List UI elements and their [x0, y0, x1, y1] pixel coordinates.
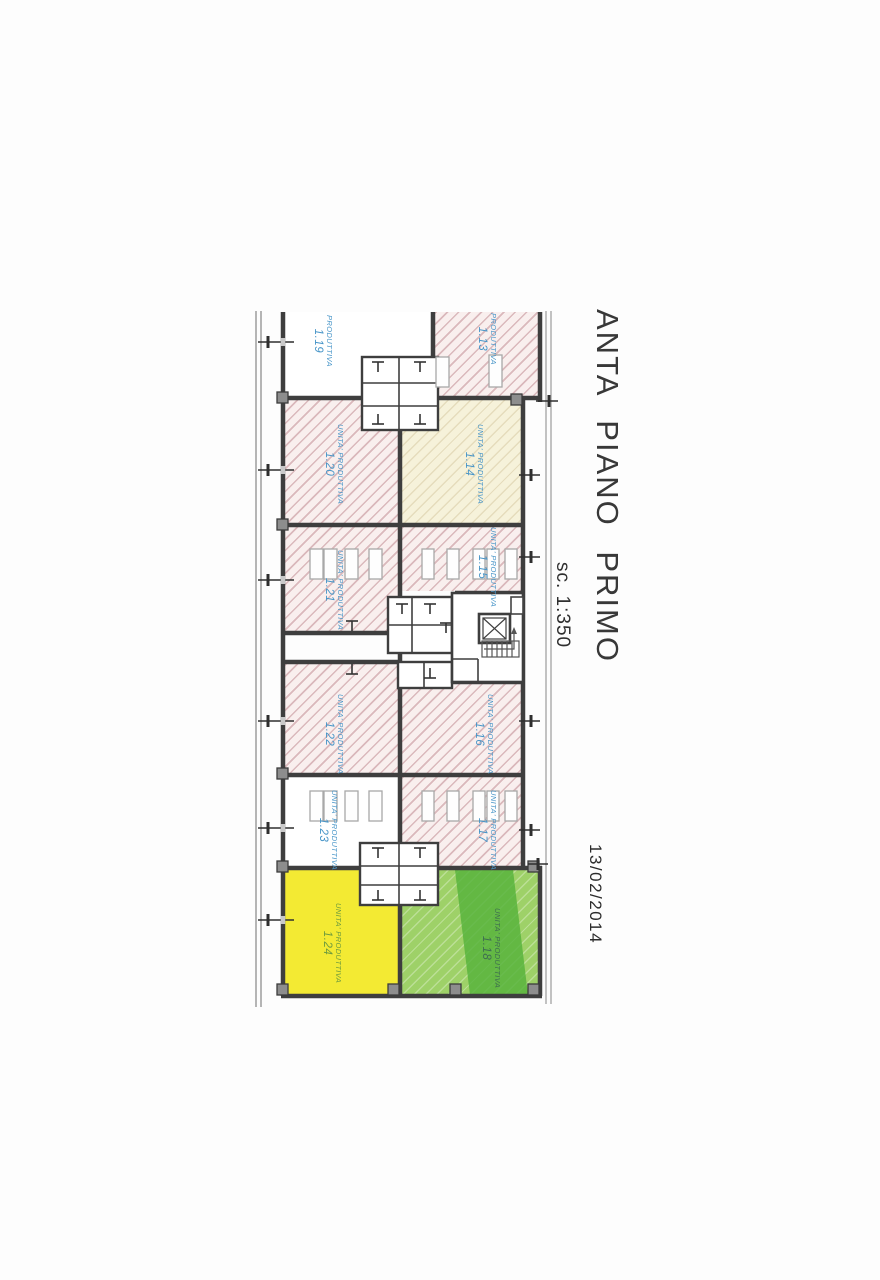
- room-label-1-21: UNITA' PRODUTTIVA 1.21: [323, 550, 344, 630]
- site-boundary-right: [546, 311, 551, 1004]
- wc-block-middle: [388, 597, 452, 688]
- room-label-1-20: UNITA' PRODUTTIVA 1.20: [323, 424, 344, 504]
- room-label-1-18: UNITA' PRODUTTIVA 1.18: [480, 908, 501, 988]
- wc-block-bottom: [360, 843, 438, 905]
- room-label-1-24: UNITA' PRODUTTIVA 1.24: [321, 903, 342, 983]
- wc-block-top: [362, 357, 438, 430]
- duct: [511, 597, 523, 614]
- drawing-title: ANTA PIANO PRIMO: [592, 309, 623, 663]
- floor-plan-page: { "drawing": { "title": "ANTA PIANO PRIM…: [0, 0, 880, 1280]
- room-label-1-23: UNITA' PRODUTTIVA 1.23: [317, 790, 338, 870]
- room-label-1-17: UNITA' PRODUTTIVA 1.17: [476, 790, 497, 870]
- scale-label: sc. 1:350: [553, 562, 572, 648]
- room-label-1-16: UNITA' PRODUTTIVA 1.16: [473, 694, 494, 774]
- drawing-date: 13/02/2014: [587, 844, 604, 944]
- elevator-icon: [479, 614, 510, 643]
- room-label-1-22: UNITA' PRODUTTIVA 1.22: [323, 694, 344, 774]
- room-label-1-14: UNITA' PRODUTTIVA 1.14: [463, 424, 484, 504]
- room-label-1-15: UNITA' PRODUTTIVA 1.15: [476, 527, 497, 607]
- floor-plan: PRODUTTIVA 1.19 PRODUTTIVA 1.13 UNITA' P…: [0, 0, 880, 1280]
- plan-linework: [0, 0, 880, 1280]
- room-label-1-13: PRODUTTIVA 1.13: [476, 313, 497, 365]
- room-label-1-19: PRODUTTIVA 1.19: [312, 315, 333, 367]
- site-boundary-left: [256, 311, 261, 1007]
